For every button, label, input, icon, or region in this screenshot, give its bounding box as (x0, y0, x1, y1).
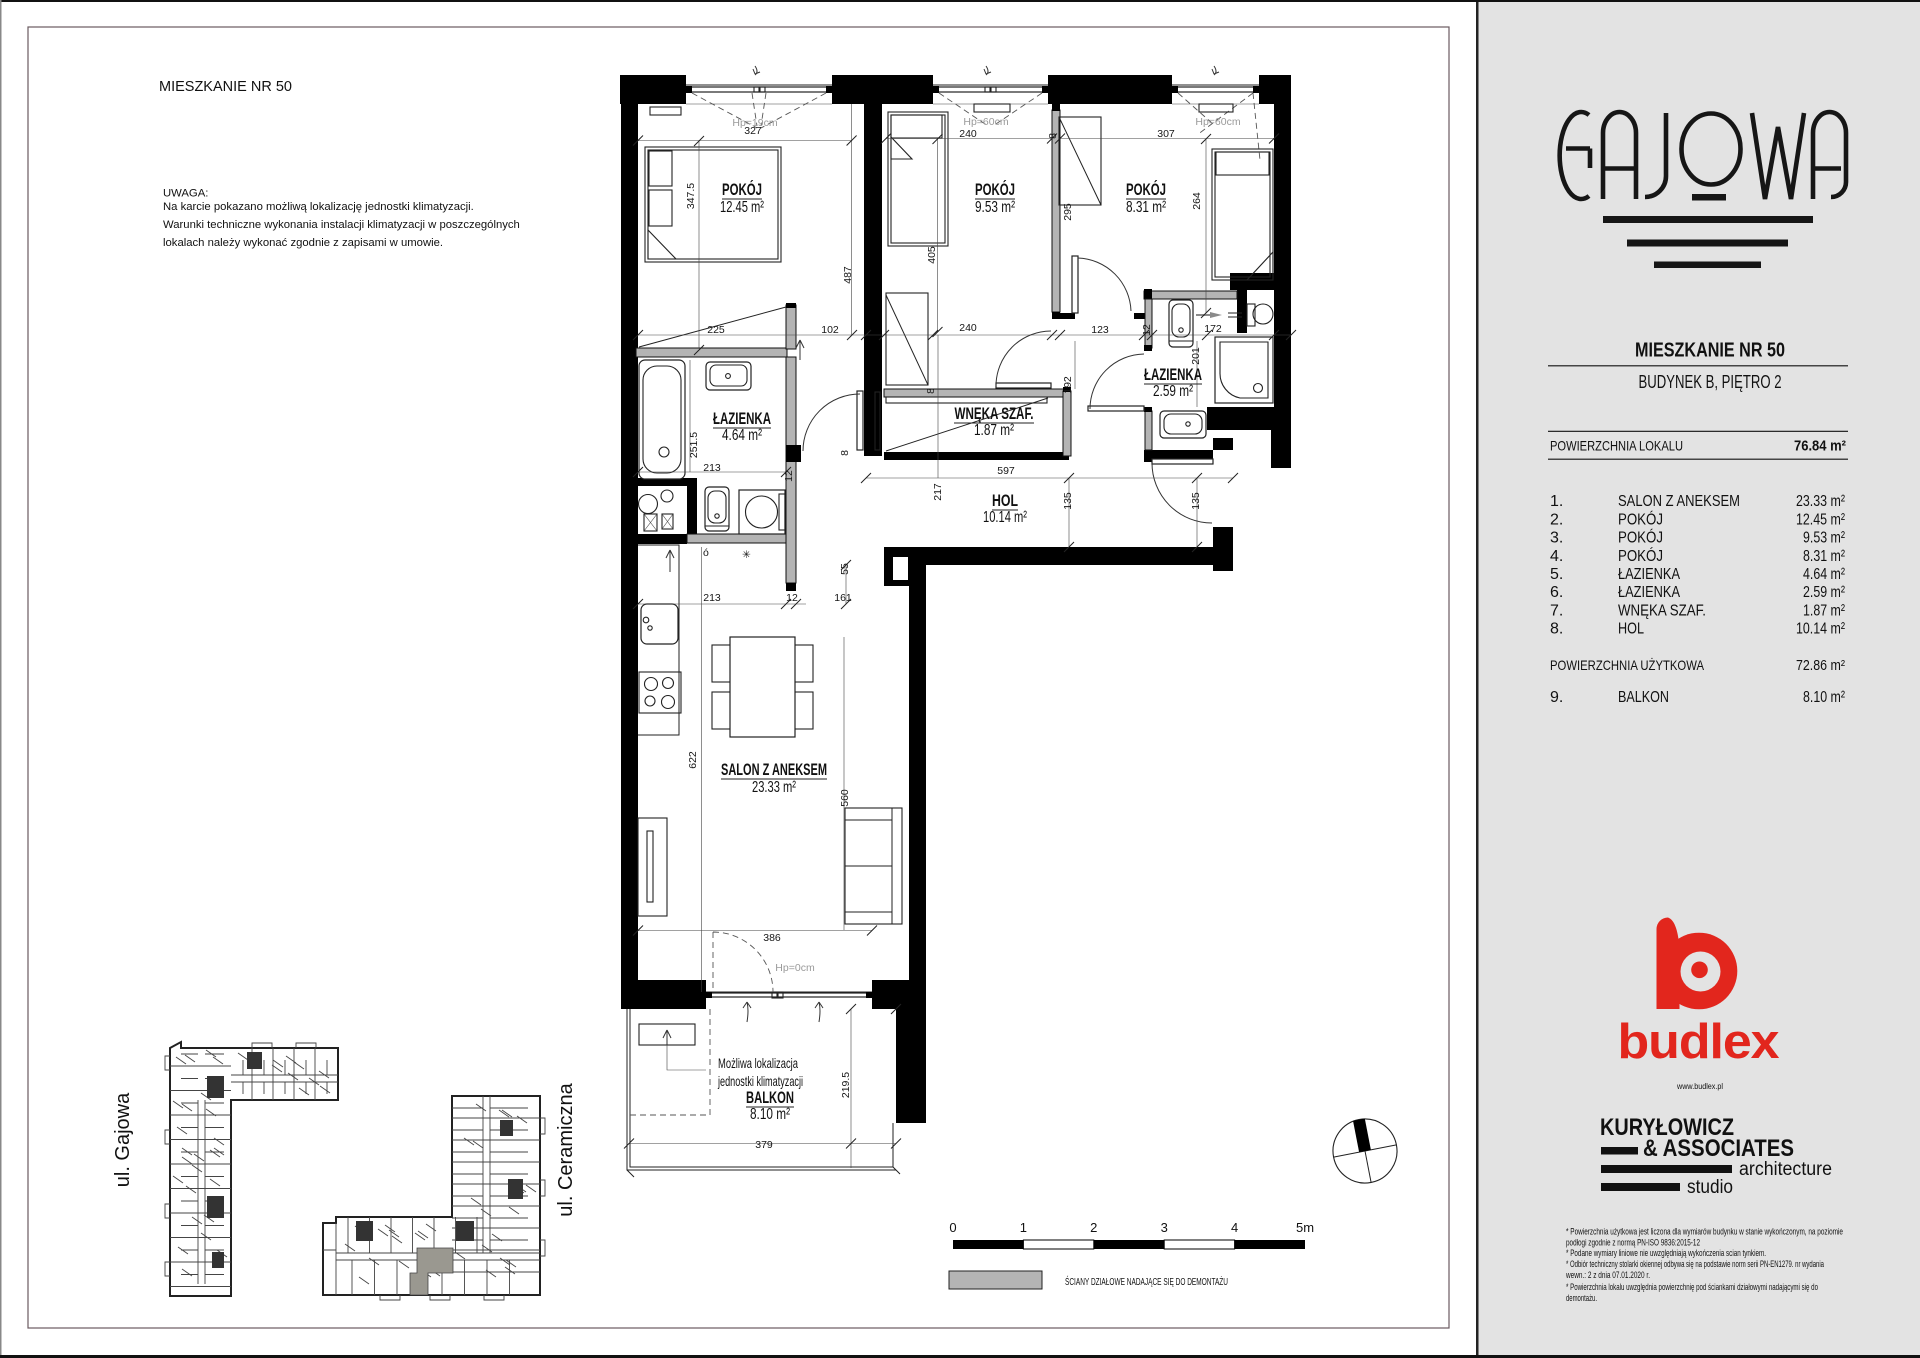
svg-text:* Powierzchnia lokalu uwzględn: * Powierzchnia lokalu uwzględnia powierz… (1566, 1282, 1818, 1292)
svg-text:BUDYNEK B, PIĘTRO 2: BUDYNEK B, PIĘTRO 2 (1639, 372, 1782, 392)
svg-text:WNĘKA SZAF.: WNĘKA SZAF. (955, 404, 1034, 423)
svg-text:ŁAZIENKA: ŁAZIENKA (1618, 584, 1680, 601)
svg-text:102: 102 (821, 324, 839, 336)
svg-text:BALKON: BALKON (1618, 689, 1669, 706)
svg-text:72.86 m²: 72.86 m² (1796, 658, 1845, 674)
svg-text:8: 8 (925, 388, 937, 394)
svg-text:Na karcie pokazano możliwą lok: Na karcie pokazano możliwą lokalizację j… (163, 201, 474, 213)
svg-text:5m: 5m (1296, 1220, 1314, 1235)
svg-text:23.33 m²: 23.33 m² (752, 779, 796, 796)
svg-text:2.59 m²: 2.59 m² (1803, 584, 1846, 601)
svg-text:251.5: 251.5 (688, 432, 700, 458)
svg-text:55: 55 (839, 563, 851, 575)
svg-text:192: 192 (1062, 376, 1074, 394)
svg-text:4.64 m²: 4.64 m² (1803, 566, 1846, 583)
svg-text:6.: 6. (1550, 584, 1563, 601)
svg-text:Warunki techniczne wykonania i: Warunki techniczne wykonania instalacji … (163, 219, 520, 231)
svg-text:HOL: HOL (1618, 621, 1644, 638)
svg-text:172: 172 (1204, 323, 1222, 335)
svg-text:8.10 m²: 8.10 m² (1803, 689, 1846, 706)
svg-text:SALON Z ANEKSEM: SALON Z ANEKSEM (1618, 493, 1740, 510)
svg-text:1.87 m²: 1.87 m² (1803, 602, 1846, 619)
svg-text:MIESZKANIE NR 50: MIESZKANIE NR 50 (1635, 340, 1785, 362)
svg-text:POKÓJ: POKÓJ (1618, 509, 1663, 528)
svg-text:2.: 2. (1550, 511, 1563, 528)
svg-text:budlex: budlex (1618, 1015, 1780, 1069)
svg-text:23.33 m²: 23.33 m² (1796, 493, 1846, 510)
svg-text:BALKON: BALKON (746, 1088, 794, 1107)
svg-text:7.: 7. (1550, 602, 1563, 619)
svg-text:264: 264 (1191, 192, 1203, 210)
svg-text:12: 12 (1141, 324, 1153, 336)
svg-text:UWAGA:: UWAGA: (163, 188, 208, 200)
svg-text:www.budlex.pl: www.budlex.pl (1676, 1081, 1723, 1091)
svg-text:8.31 m²: 8.31 m² (1126, 199, 1166, 216)
svg-text:ŚCIANY DZIAŁOWE NADAJĄCE SIĘ D: ŚCIANY DZIAŁOWE NADAJĄCE SIĘ DO DEMONTAŻ… (1065, 1275, 1228, 1288)
svg-text:405: 405 (926, 246, 938, 264)
svg-text:4: 4 (1231, 1220, 1238, 1235)
svg-text:217: 217 (932, 483, 944, 501)
svg-text:8.31 m²: 8.31 m² (1803, 548, 1846, 565)
svg-text:622: 622 (687, 751, 699, 769)
svg-text:POKÓJ: POKÓJ (975, 180, 1015, 199)
svg-text:architecture: architecture (1739, 1159, 1832, 1180)
svg-text:12: 12 (783, 470, 795, 482)
svg-text:307: 307 (1157, 128, 1175, 140)
svg-text:* Odbiór techniczny stolarki o: * Odbiór techniczny stolarki okiennej od… (1566, 1259, 1824, 1269)
svg-text:213: 213 (703, 462, 721, 474)
svg-text:Hp=60cm: Hp=60cm (963, 116, 1008, 128)
svg-text:POKÓJ: POKÓJ (1618, 528, 1663, 547)
svg-text:0: 0 (949, 1220, 956, 1235)
svg-text:POKÓJ: POKÓJ (1618, 546, 1663, 565)
svg-text:demontażu.: demontażu. (1566, 1293, 1597, 1303)
svg-text:4.: 4. (1550, 548, 1563, 565)
svg-text:8.10 m²: 8.10 m² (750, 1106, 790, 1123)
svg-text:240: 240 (959, 128, 977, 140)
svg-text:12: 12 (786, 592, 798, 604)
svg-text:POWIERZCHNIA LOKALU: POWIERZCHNIA LOKALU (1550, 437, 1683, 453)
svg-text:Hp=19cm: Hp=19cm (732, 117, 777, 129)
svg-text:76.84 m²: 76.84 m² (1794, 438, 1846, 454)
svg-text:8: 8 (839, 450, 851, 456)
svg-text:✳: ✳ (742, 549, 751, 561)
svg-text:ul. Gajowa: ul. Gajowa (112, 1092, 134, 1187)
svg-text:ŁAZIENKA: ŁAZIENKA (713, 409, 771, 428)
svg-text:213: 213 (703, 592, 721, 604)
svg-text:3.: 3. (1550, 530, 1563, 547)
svg-text:POWIERZCHNIA UŻYTKOWA: POWIERZCHNIA UŻYTKOWA (1550, 656, 1705, 673)
svg-text:9.: 9. (1550, 689, 1563, 706)
svg-text:9.53 m²: 9.53 m² (1803, 530, 1846, 547)
svg-text:1.87 m²: 1.87 m² (974, 422, 1014, 439)
svg-text:5.: 5. (1550, 566, 1563, 583)
svg-text:295: 295 (1062, 203, 1074, 221)
svg-text:597: 597 (997, 465, 1015, 477)
svg-text:4.64 m²: 4.64 m² (722, 427, 762, 444)
svg-text:ŁAZIENKA: ŁAZIENKA (1144, 365, 1202, 384)
svg-text:ó: ó (703, 547, 709, 559)
svg-text:10.14 m²: 10.14 m² (983, 509, 1027, 526)
svg-text:123: 123 (1091, 324, 1109, 336)
svg-text:MIESZKANIE NR 50: MIESZKANIE NR 50 (159, 79, 292, 95)
svg-text:12.45 m²: 12.45 m² (720, 199, 764, 216)
svg-text:* Powierzchnia użytkowa jest l: * Powierzchnia użytkowa jest liczona dla… (1566, 1227, 1843, 1237)
svg-text:2: 2 (1090, 1220, 1097, 1235)
svg-text:201: 201 (1190, 347, 1202, 365)
svg-text:ul. Ceramiczna: ul. Ceramiczna (555, 1082, 577, 1216)
svg-text:8: 8 (1047, 133, 1059, 139)
svg-text:Możliwa lokalizacja: Możliwa lokalizacja (718, 1055, 798, 1071)
svg-text:135: 135 (1190, 492, 1202, 510)
svg-text:SALON Z ANEKSEM: SALON Z ANEKSEM (721, 760, 827, 779)
svg-text:560: 560 (839, 789, 851, 807)
svg-text:487: 487 (842, 266, 854, 284)
svg-text:1: 1 (1020, 1220, 1027, 1235)
svg-text:POKÓJ: POKÓJ (1126, 180, 1166, 199)
svg-text:379: 379 (755, 1139, 773, 1151)
svg-text:Hp=60cm: Hp=60cm (1195, 116, 1240, 128)
svg-text:135: 135 (1062, 492, 1074, 510)
svg-text:* Podane wymiary liniowe nie u: * Podane wymiary liniowe nie uwzględniaj… (1566, 1248, 1766, 1258)
svg-text:1.: 1. (1550, 493, 1563, 510)
svg-text:240: 240 (959, 322, 977, 334)
svg-text:lokalach należy wykonać zgodni: lokalach należy wykonać zgodnie z zapisa… (163, 237, 443, 249)
svg-text:347.5: 347.5 (685, 183, 697, 209)
svg-text:POKÓJ: POKÓJ (722, 180, 762, 199)
svg-text:podłogi zgodnie z normą PN-ISO: podłogi zgodnie z normą PN-ISO 9836:2015… (1566, 1237, 1700, 1247)
svg-text:Hp=0cm: Hp=0cm (775, 962, 815, 974)
svg-text:& ASSOCIATES: & ASSOCIATES (1643, 1135, 1794, 1162)
svg-text:wewn.: 2 z dnia 07.01.2020 r.: wewn.: 2 z dnia 07.01.2020 r. (1565, 1270, 1650, 1280)
svg-text:HOL: HOL (992, 491, 1018, 510)
svg-text:ŁAZIENKA: ŁAZIENKA (1618, 566, 1680, 583)
svg-text:8.: 8. (1550, 621, 1563, 638)
svg-text:studio: studio (1687, 1177, 1733, 1198)
svg-text:3: 3 (1161, 1220, 1168, 1235)
svg-text:386: 386 (763, 932, 781, 944)
svg-text:161: 161 (834, 592, 852, 604)
svg-text:12.45 m²: 12.45 m² (1796, 511, 1846, 528)
svg-text:jednostki klimatyzacji: jednostki klimatyzacji (717, 1073, 803, 1089)
svg-text:225: 225 (707, 324, 725, 336)
svg-text:WNĘKA SZAF.: WNĘKA SZAF. (1618, 602, 1706, 619)
svg-text:9.53 m²: 9.53 m² (975, 199, 1015, 216)
svg-text:219.5: 219.5 (840, 1072, 852, 1098)
svg-text:10.14 m²: 10.14 m² (1796, 621, 1846, 638)
svg-text:2.59 m²: 2.59 m² (1153, 383, 1193, 400)
